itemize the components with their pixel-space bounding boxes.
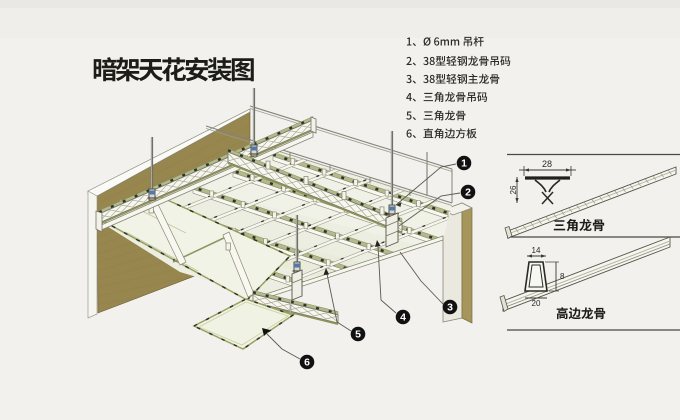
svg-text:4: 4 [400, 312, 406, 324]
svg-text:6: 6 [304, 357, 310, 369]
svg-text:5: 5 [355, 329, 361, 341]
svg-text:1: 1 [461, 158, 467, 170]
svg-text:8: 8 [560, 272, 565, 281]
svg-text:3: 3 [447, 302, 453, 314]
svg-text:28: 28 [542, 159, 552, 169]
svg-text:2: 2 [465, 187, 471, 199]
svg-text:26: 26 [509, 185, 518, 194]
svg-text:20: 20 [532, 299, 541, 308]
svg-text:14: 14 [532, 246, 541, 255]
